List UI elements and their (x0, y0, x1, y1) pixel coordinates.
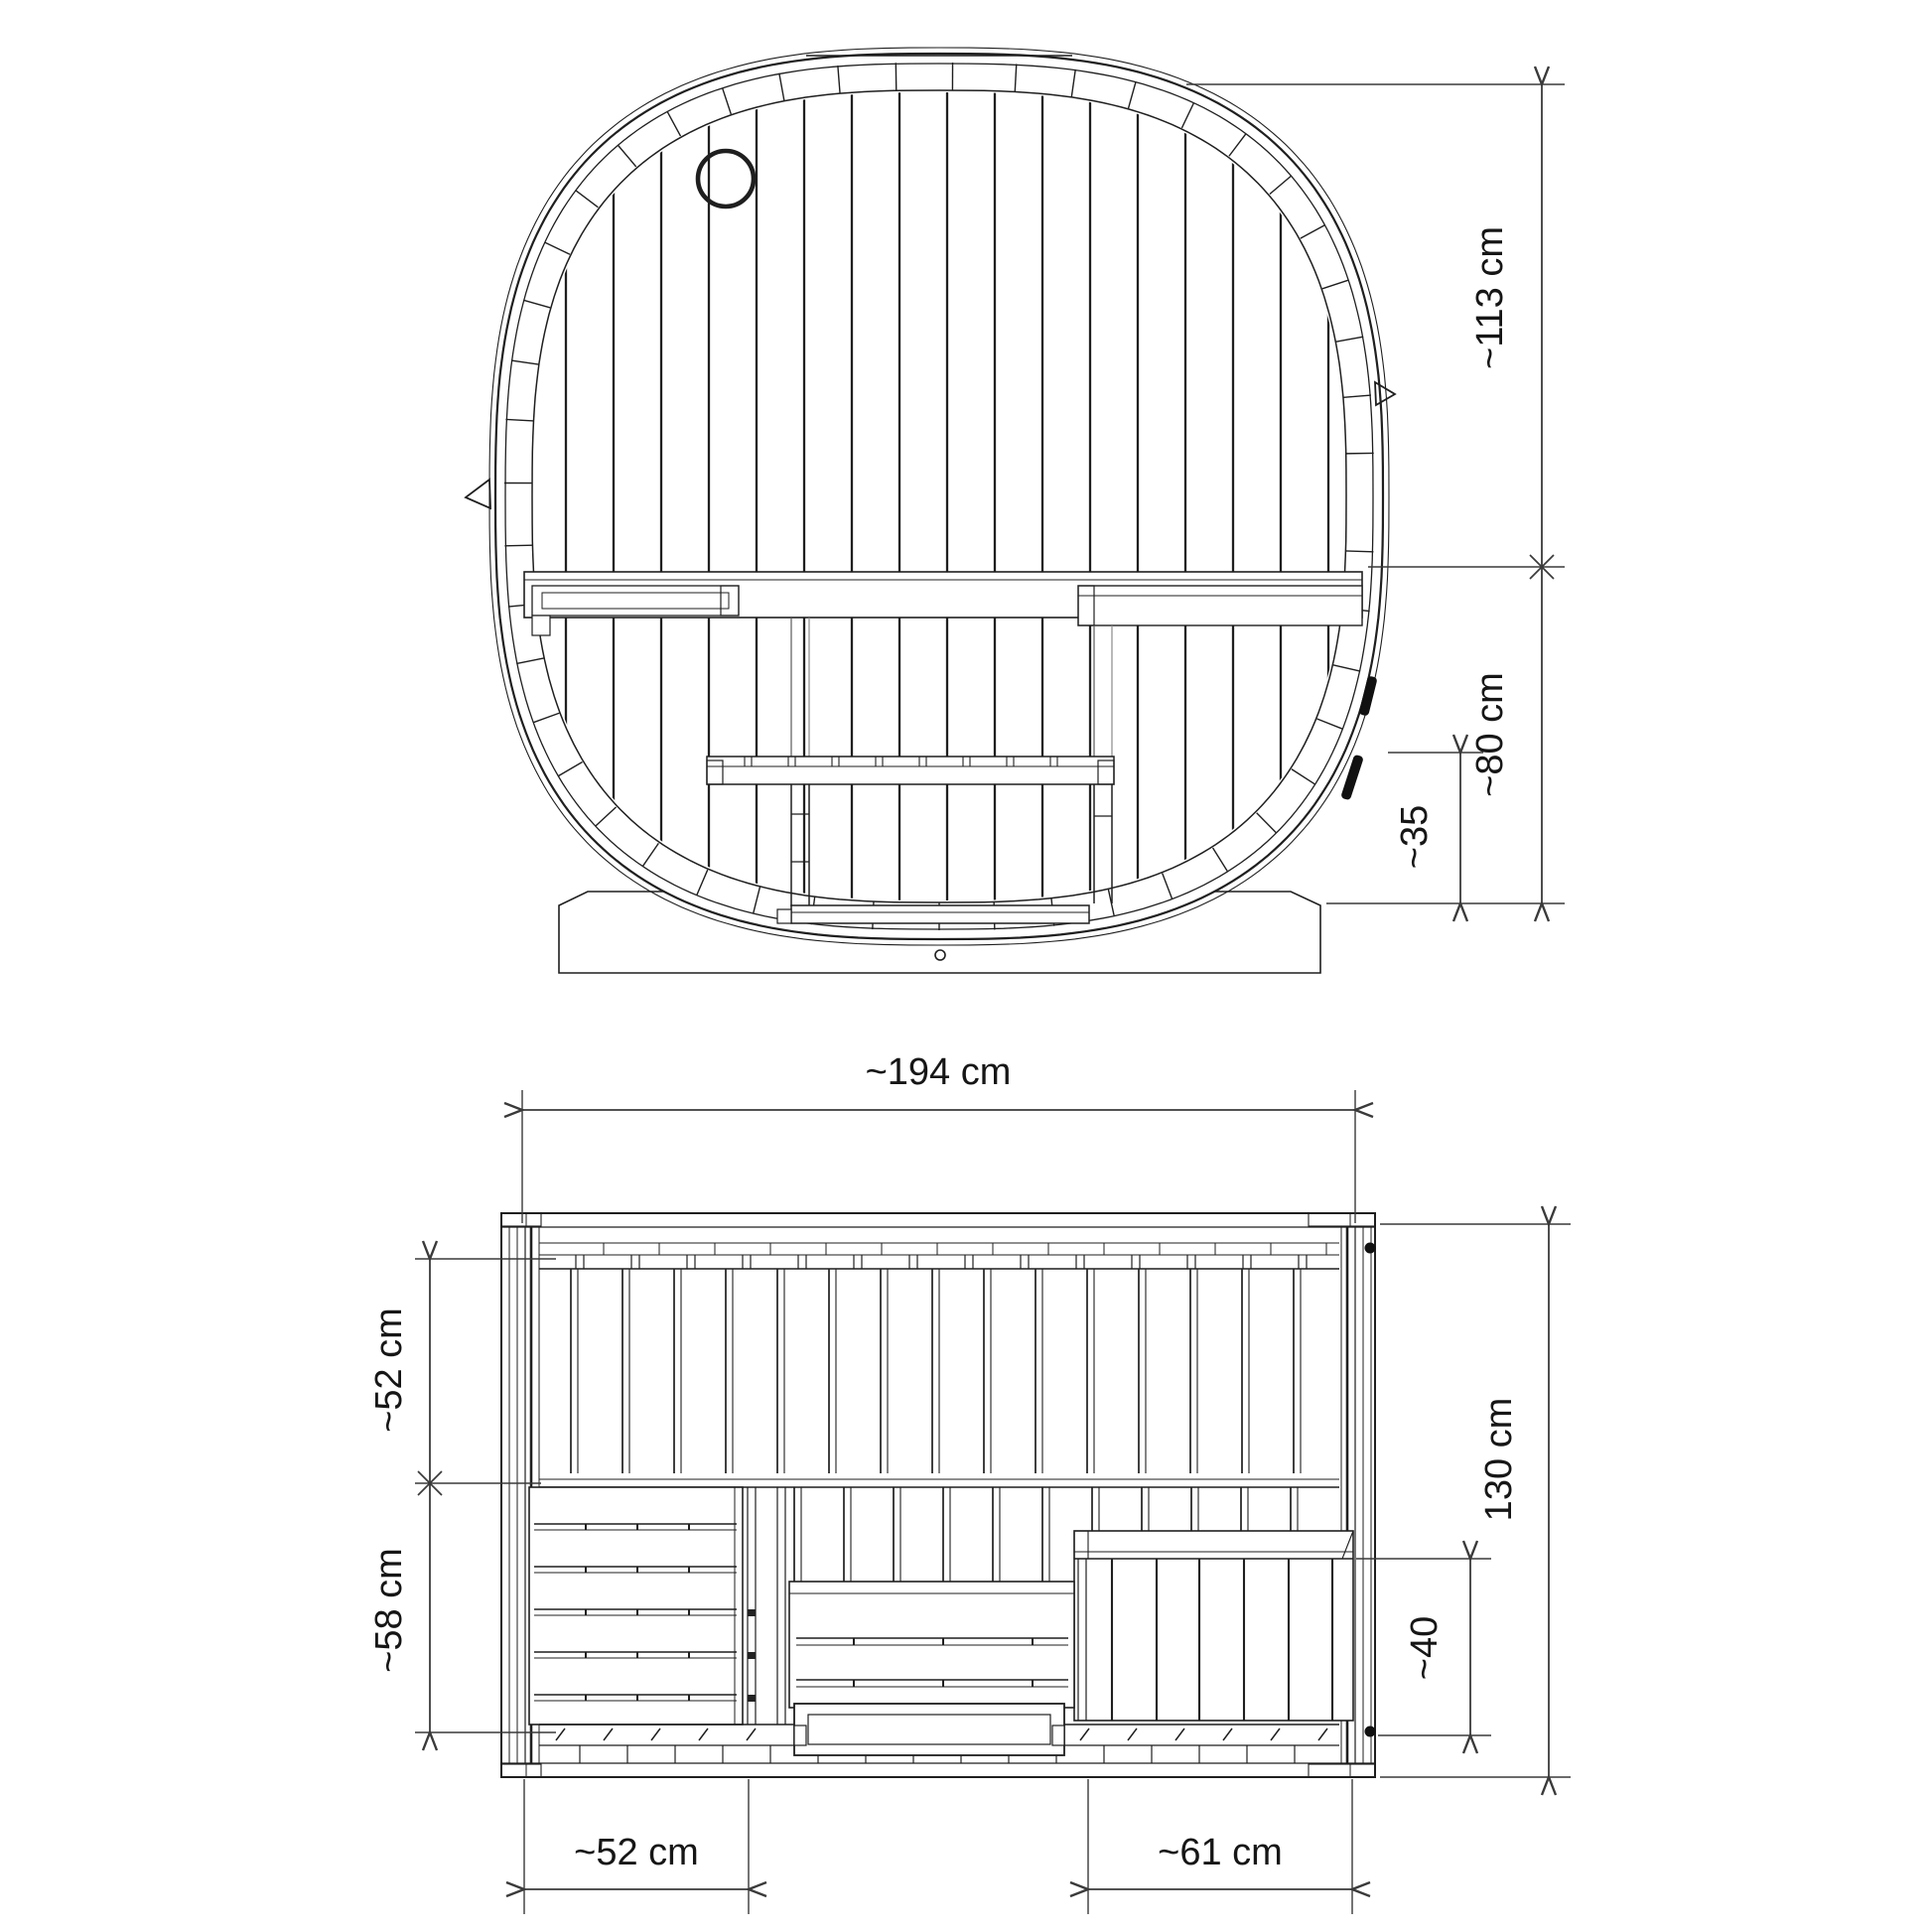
dim-label-35: ~35 (1394, 805, 1436, 869)
dim-label-52-bottom: ~52 cm (574, 1832, 699, 1873)
front-elevation-view: ~113 cm ~80 cm ~35 (466, 48, 1565, 973)
dim-label-194: ~194 cm (866, 1051, 1012, 1093)
middle-lower-bench (789, 1582, 1074, 1708)
dim-label-40: ~40 (1404, 1616, 1446, 1680)
hinge-dot-top (1365, 1243, 1376, 1254)
dim-label-61: ~61 cm (1158, 1832, 1283, 1873)
dim-label-80: ~80 cm (1469, 672, 1511, 797)
entrance-step (794, 1704, 1064, 1755)
dim-label-58: ~58 cm (368, 1548, 410, 1673)
door-hinge-lower (1340, 755, 1364, 801)
dim-label-130: 130 cm (1478, 1398, 1520, 1522)
sauna-shell (489, 48, 1389, 945)
plan-view: ~194 cm ~52 cm ~58 cm 130 cm ~40 (368, 1051, 1571, 1914)
dim-label-113: ~113 cm (1469, 226, 1511, 369)
sauna-technical-drawing: ~113 cm ~80 cm ~35 (0, 0, 1932, 1932)
drawing-page: ~113 cm ~80 cm ~35 (0, 0, 1932, 1932)
left-clip-marker (466, 480, 490, 508)
dim-label-52-left: ~52 cm (368, 1308, 410, 1433)
right-bench (1074, 1531, 1353, 1721)
hinge-dot-bottom (1365, 1726, 1376, 1737)
